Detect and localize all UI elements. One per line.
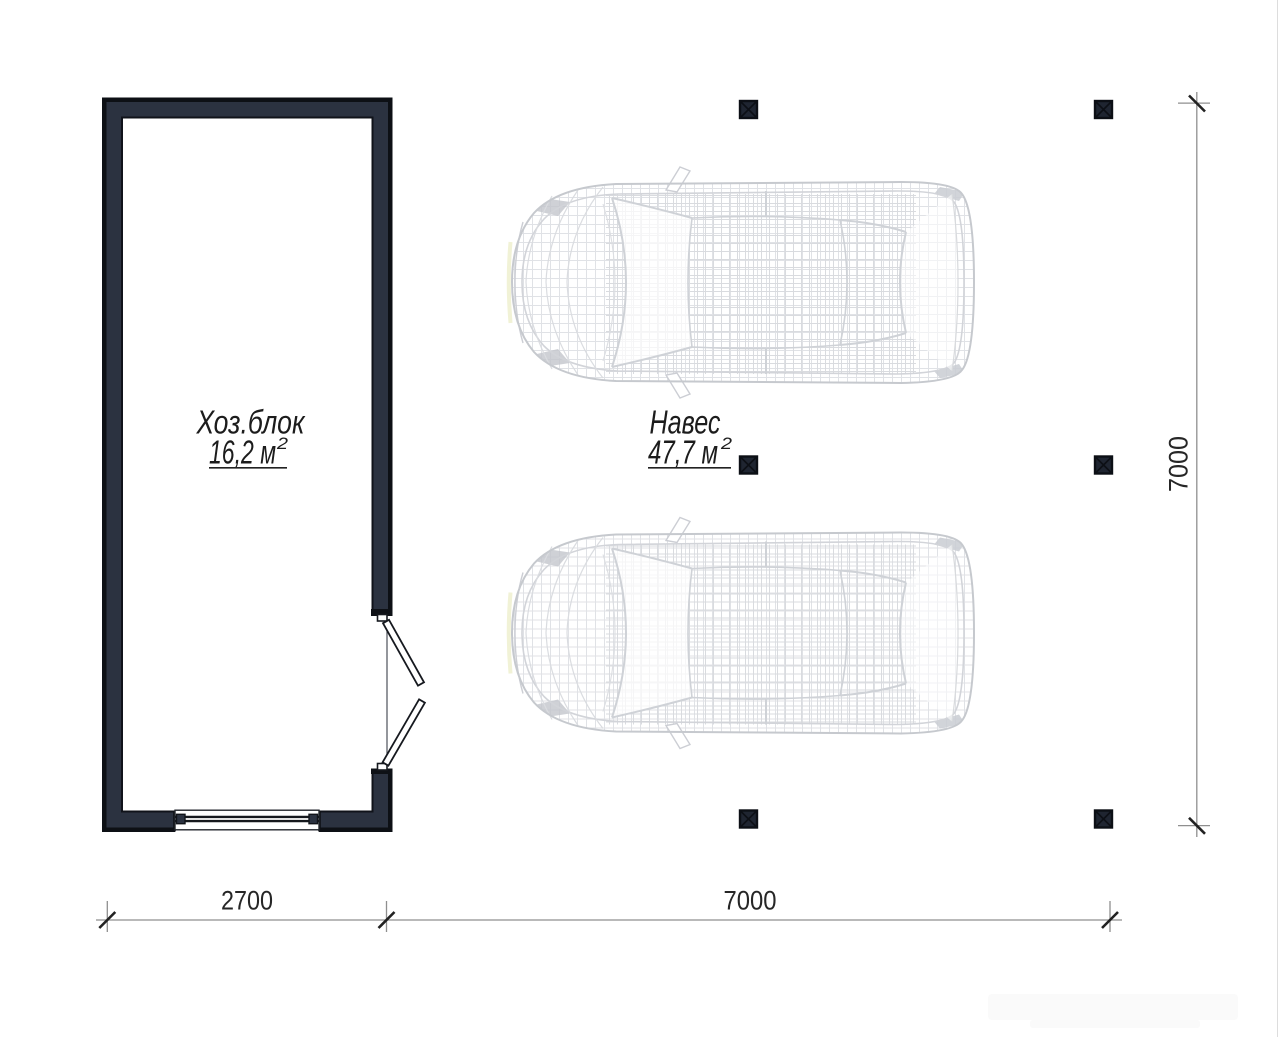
svg-text:2: 2 bbox=[720, 434, 733, 453]
svg-text:7000: 7000 bbox=[1164, 436, 1194, 492]
svg-text:47,7 м: 47,7 м bbox=[648, 434, 718, 471]
svg-text:2700: 2700 bbox=[221, 886, 273, 916]
svg-text:2: 2 bbox=[276, 434, 289, 453]
svg-text:16,2 м: 16,2 м bbox=[209, 434, 276, 471]
svg-text:7000: 7000 bbox=[724, 886, 777, 916]
